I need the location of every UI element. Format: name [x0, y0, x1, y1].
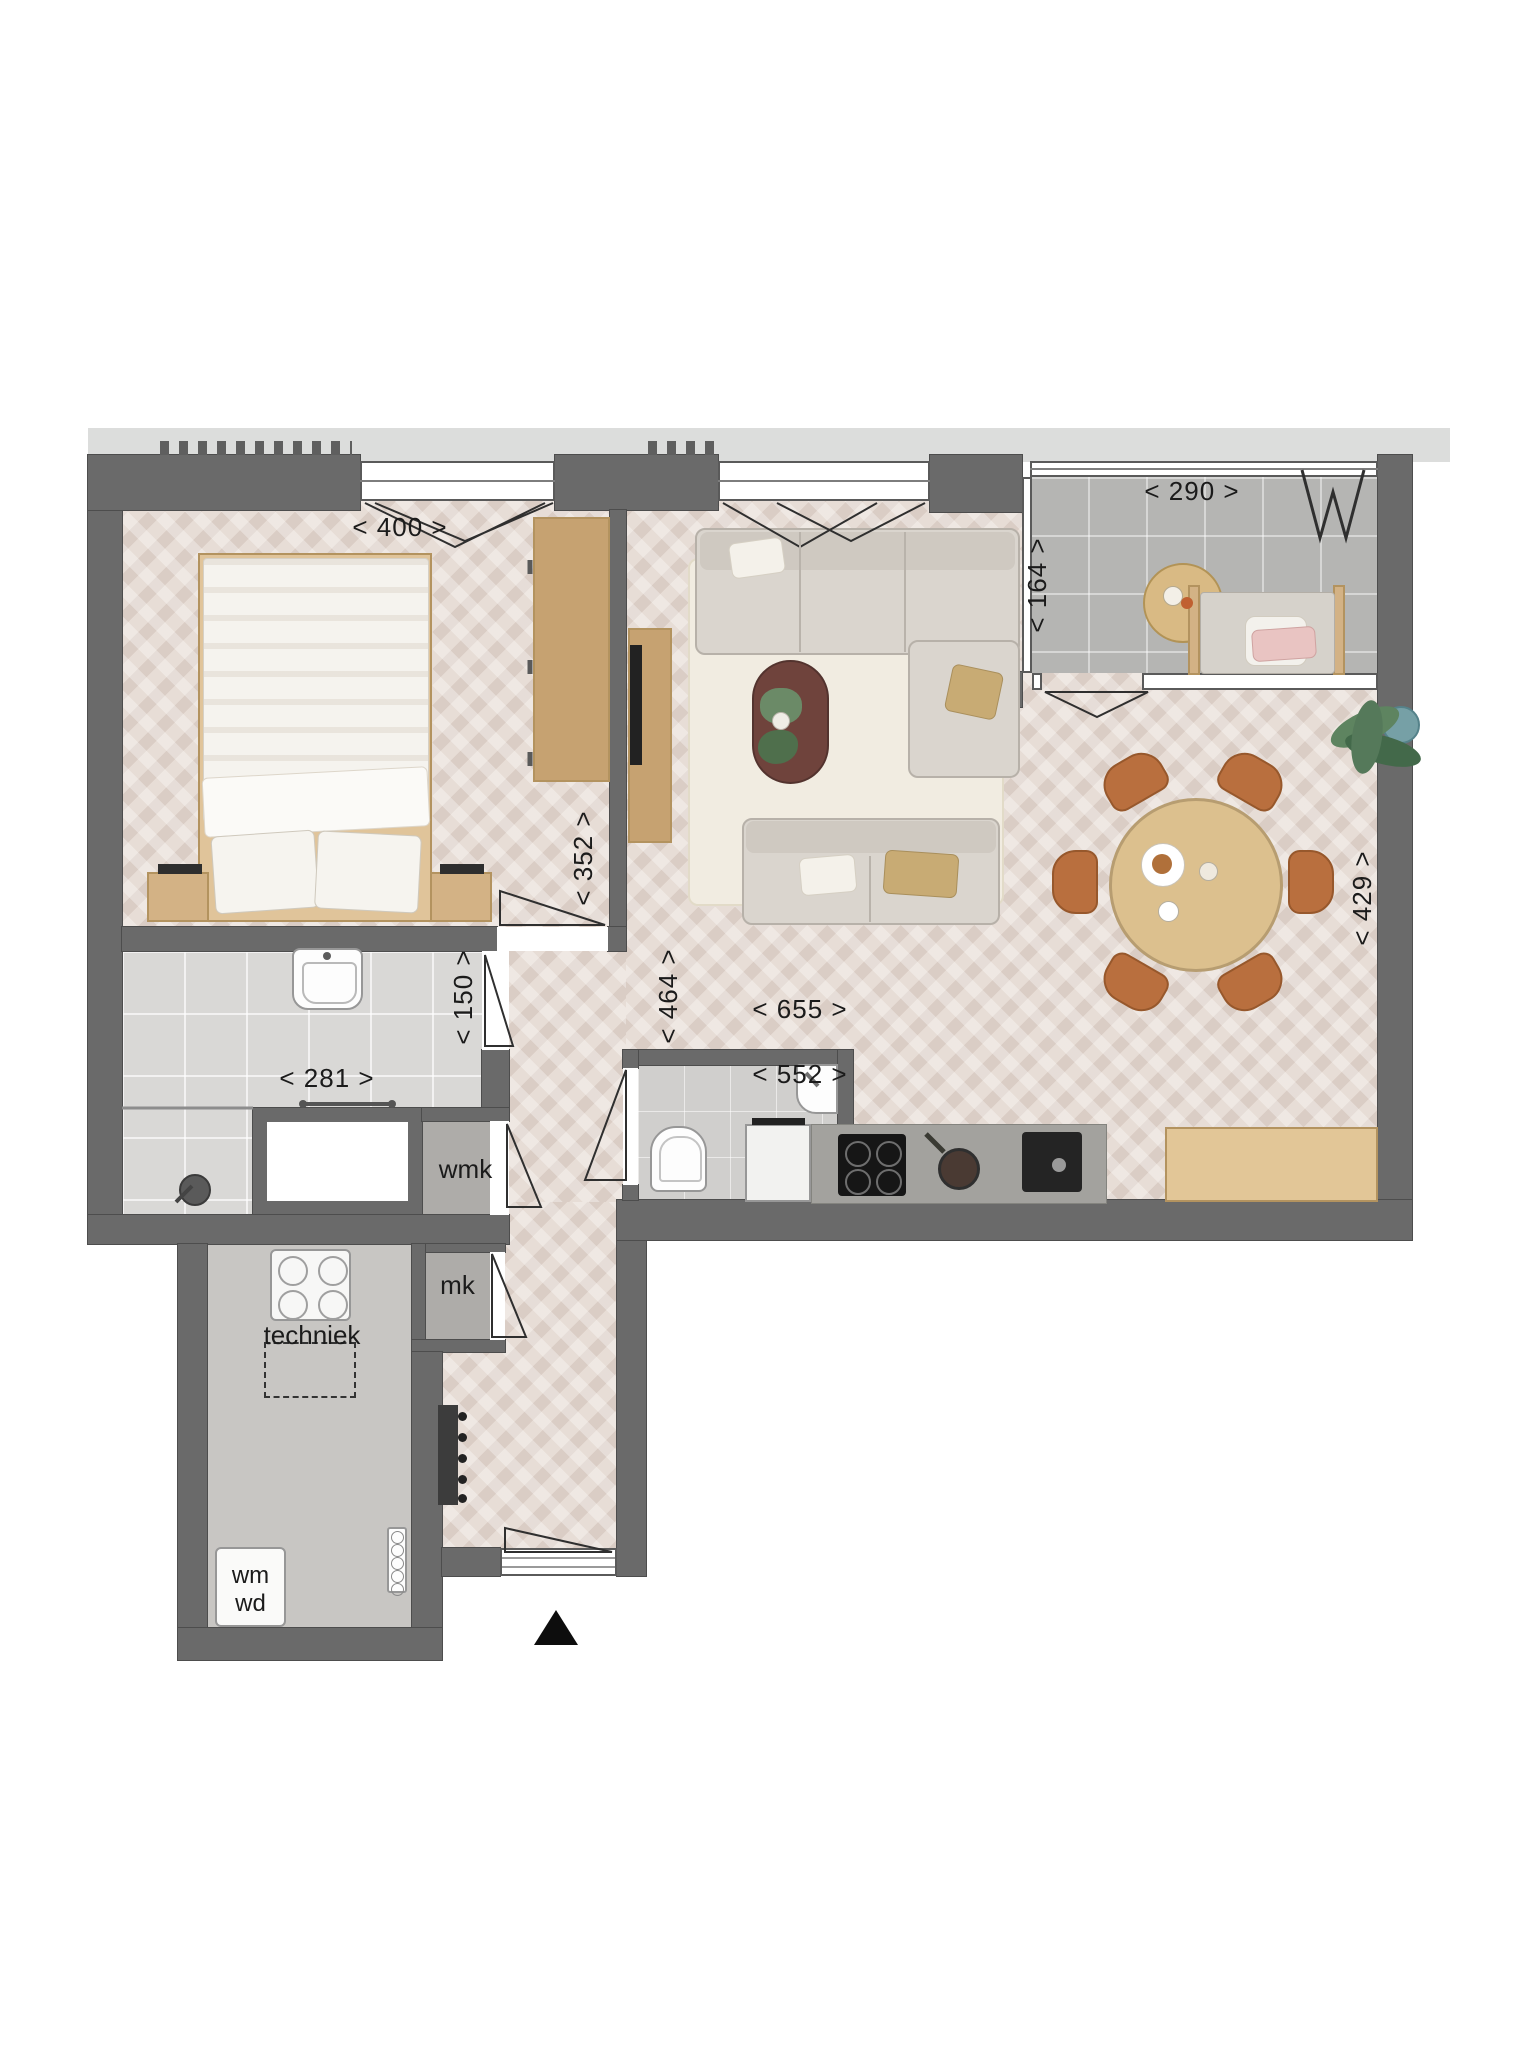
wardrobe — [533, 517, 610, 782]
coat-rack — [438, 1405, 458, 1505]
wall-bathroom-bottom — [88, 1215, 509, 1244]
dim-label-400: < 400 > — [340, 513, 460, 541]
wall-right-outer — [1378, 455, 1412, 1240]
door-gap-mk — [490, 1252, 505, 1340]
balcony-glass-bottom-left — [1032, 673, 1042, 690]
vent-grille-strip — [648, 441, 714, 455]
coat-hook — [458, 1494, 467, 1503]
dining-chair — [1052, 850, 1098, 914]
floor-plan: < 400 > < 290 > < 164 > < 352 > < 150 > … — [0, 0, 1536, 2048]
unit-port — [318, 1256, 348, 1286]
wall-wc-left-upper — [623, 1050, 638, 1068]
bench-pillow-pink — [1251, 626, 1317, 662]
dining-plate-food — [1152, 854, 1172, 874]
intercom-dot — [391, 1544, 404, 1557]
bathroom-sink-basin — [302, 962, 357, 1004]
hob-burner — [845, 1169, 871, 1195]
hob-burner — [845, 1141, 871, 1167]
coffee-table-cup — [772, 712, 790, 730]
label-wm: wm — [215, 1562, 286, 1590]
dim-label-352: < 352 > — [569, 798, 597, 918]
wall-hall-left — [412, 1352, 442, 1660]
balcony-glass-bottom-right — [1142, 673, 1378, 690]
bed-pillow-left — [210, 829, 319, 914]
sideboard-bench — [1165, 1127, 1378, 1202]
dim-label-429: < 429 > — [1348, 838, 1376, 958]
hob-burner — [876, 1169, 902, 1195]
label-techniek: techniek — [232, 1320, 392, 1351]
bed-pillow-right — [314, 830, 422, 913]
window-bedroom — [360, 461, 555, 501]
label-wd: wd — [215, 1590, 286, 1618]
sofa-two-pillow-white — [798, 854, 857, 897]
coat-hook — [458, 1475, 467, 1484]
dim-label-464: < 464 > — [654, 936, 682, 1056]
door-gap-wc — [623, 1068, 638, 1185]
sofa-pillow-beige — [944, 663, 1005, 721]
dining-table — [1109, 798, 1283, 972]
wall-left-outer — [88, 455, 122, 1244]
wall-top-left-block — [88, 455, 360, 510]
dim-label-150: < 150 > — [449, 937, 477, 1057]
label-wmk: wmk — [422, 1154, 509, 1185]
nightstand-right — [430, 872, 492, 922]
shower-head — [179, 1174, 211, 1206]
hob-burner — [876, 1141, 902, 1167]
shaft-void — [267, 1122, 408, 1201]
wall-mk-left — [412, 1244, 425, 1345]
dining-cup — [1158, 901, 1179, 922]
wall-wc-left-lower — [623, 1185, 638, 1200]
coat-hook — [458, 1412, 467, 1421]
sofa-two-back — [746, 821, 996, 853]
intercom-dot — [391, 1583, 404, 1596]
tv-screen — [630, 645, 642, 765]
fridge-handle — [752, 1118, 805, 1125]
wall-techniek-left — [178, 1244, 207, 1660]
sofa-two-pillow-beige — [883, 849, 960, 898]
dining-chair — [1288, 850, 1334, 914]
wall-living-bottom — [617, 1200, 1412, 1240]
toilet-seat — [659, 1136, 702, 1182]
intercom-dot — [391, 1557, 404, 1570]
unit-port — [318, 1290, 348, 1320]
north-arrow — [534, 1610, 578, 1645]
label-mk: mk — [425, 1270, 490, 1301]
wall-mk-bottom — [412, 1340, 505, 1352]
floor-hall-upper — [509, 951, 626, 1202]
window-living — [718, 461, 930, 501]
wall-top-middle-pillar — [555, 455, 718, 510]
intercom-dot — [391, 1570, 404, 1583]
vent-grille-strip — [160, 441, 352, 455]
unit-port — [278, 1290, 308, 1320]
door-gap-bedroom — [497, 927, 608, 951]
balcony-rail-top — [1030, 461, 1378, 477]
fridge-cabinet — [745, 1124, 811, 1202]
dim-label-655: < 655 > — [740, 995, 860, 1023]
dim-label-281: < 281 > — [267, 1064, 387, 1092]
entry-door-sill — [500, 1548, 617, 1576]
dining-cup — [1199, 862, 1218, 881]
wall-hall-right — [617, 1240, 646, 1576]
nightstand-left — [147, 872, 209, 922]
wall-hall-bottom — [442, 1548, 500, 1576]
wall-techniek-bottom — [178, 1628, 442, 1660]
dim-label-552: < 552 > — [740, 1060, 860, 1088]
door-gap-bathroom — [482, 951, 509, 1050]
balcony-cup — [1163, 586, 1183, 606]
wall-bedroom-bottom-right — [608, 927, 626, 951]
coat-hook — [458, 1454, 467, 1463]
nightstand-right-item — [440, 864, 484, 874]
unit-port — [278, 1256, 308, 1286]
balcony-snack — [1181, 597, 1193, 609]
wall-top-pillar-c — [930, 455, 1022, 512]
dim-label-164: < 164 > — [1023, 525, 1051, 645]
sofa-pillow-white — [728, 536, 786, 579]
frying-pan — [938, 1148, 980, 1190]
dim-label-290: < 290 > — [1132, 477, 1252, 505]
wall-mk-top — [412, 1244, 505, 1252]
bed-blanket-fold — [202, 766, 431, 838]
nightstand-left-item — [158, 864, 202, 874]
wall-wmk-top — [422, 1108, 509, 1121]
wall-bedroom-right — [610, 510, 626, 927]
coat-hook — [458, 1433, 467, 1442]
intercom-dot — [391, 1531, 404, 1544]
kitchen-faucet — [1052, 1158, 1066, 1172]
